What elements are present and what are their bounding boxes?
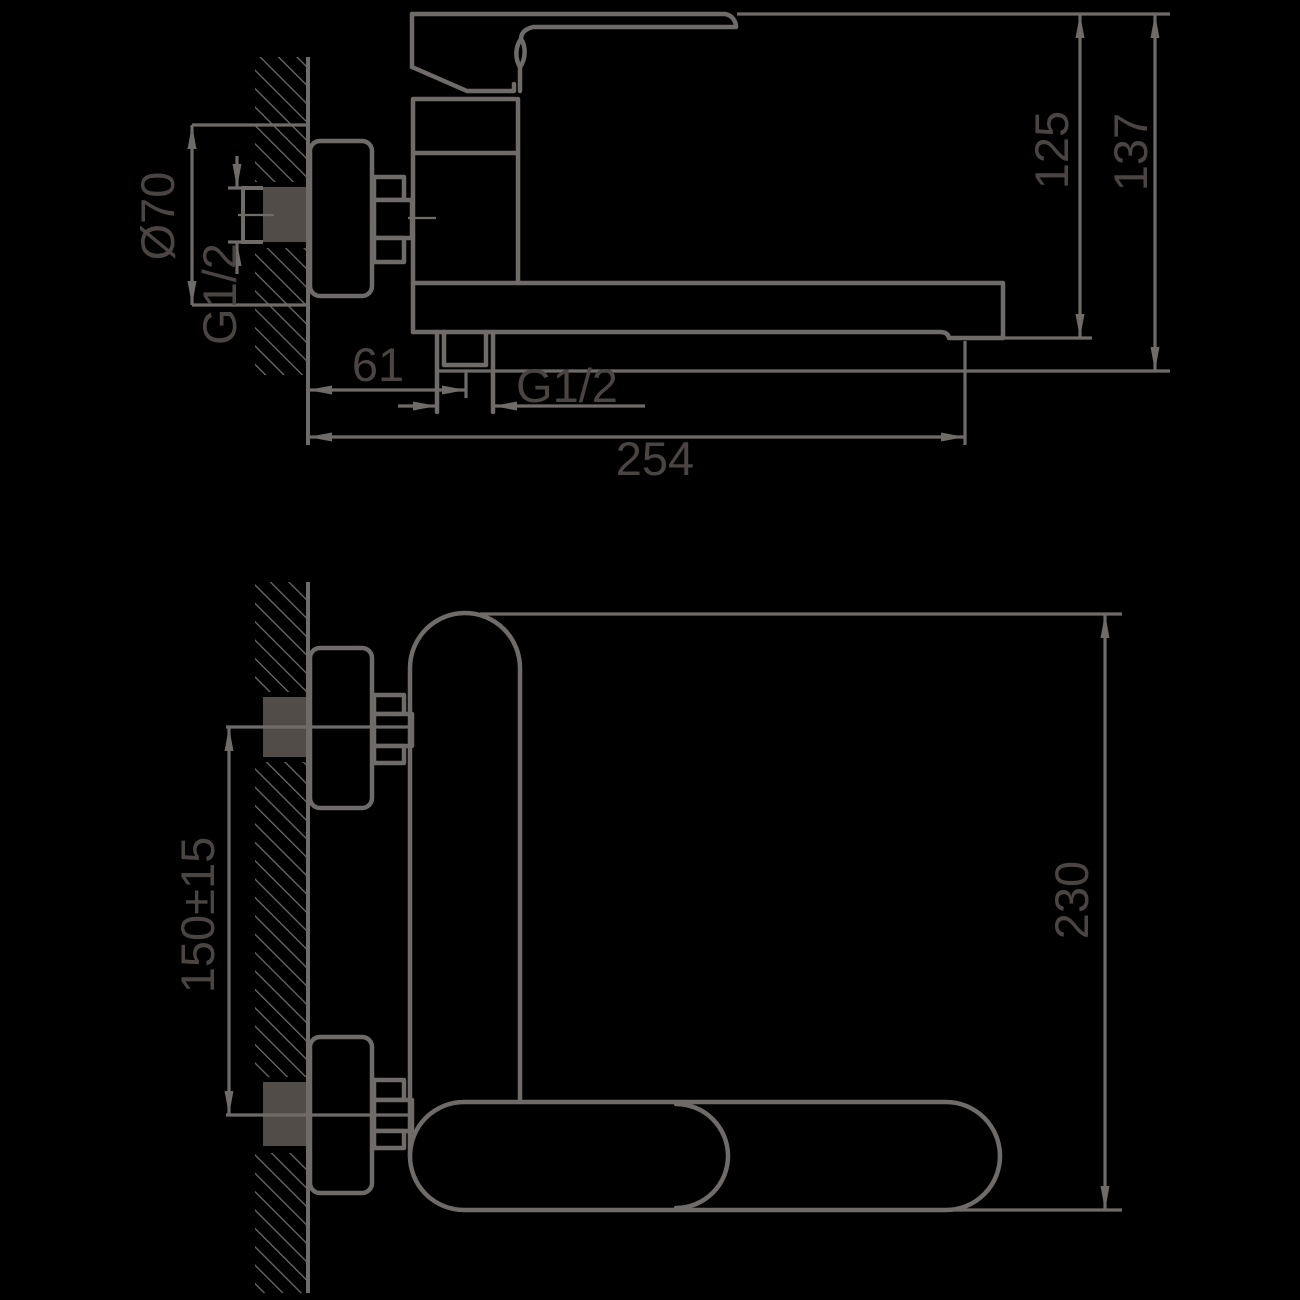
wall-section-plan xyxy=(255,582,308,1293)
wall-hatch xyxy=(255,762,308,1077)
side-view: Ø70 G1/2 61 G1/2 254 125 137 xyxy=(131,14,1170,485)
lever-handle xyxy=(412,14,736,39)
dim-label-150-15: 150±15 xyxy=(171,837,224,994)
dim-label-125: 125 xyxy=(1025,111,1078,189)
plan-view: 150±15 230 xyxy=(171,582,1122,1293)
dim-label-wall-thread: G1/2 xyxy=(193,243,246,345)
faucet-body-side xyxy=(412,14,1170,412)
dim-label-escutcheon-diameter: Ø70 xyxy=(131,172,184,261)
wall-hatch xyxy=(255,1153,308,1293)
escutcheon-flange xyxy=(310,141,372,296)
wall-hatch xyxy=(255,582,308,692)
dim-label-outlet-thread: G1/2 xyxy=(516,359,618,412)
technical-drawing: Ø70 G1/2 61 G1/2 254 125 137 xyxy=(0,0,1300,1300)
body-outline xyxy=(413,99,518,332)
lever-tip xyxy=(516,39,524,91)
dim-label-61: 61 xyxy=(352,338,404,391)
spout-handle-capsule xyxy=(410,1102,1000,1210)
spout xyxy=(413,283,1003,338)
dim-label-254: 254 xyxy=(616,432,694,485)
wall-hatch xyxy=(255,248,308,375)
dim-label-137: 137 xyxy=(1104,113,1157,191)
mounting-nut-upper xyxy=(374,695,412,763)
mounting-nut xyxy=(374,177,436,262)
faucet-body-plan xyxy=(410,613,520,1157)
dim-label-230: 230 xyxy=(1045,861,1098,939)
wall-section xyxy=(238,57,308,445)
cartridge-cap xyxy=(412,67,514,91)
wall-hatch xyxy=(255,57,308,182)
